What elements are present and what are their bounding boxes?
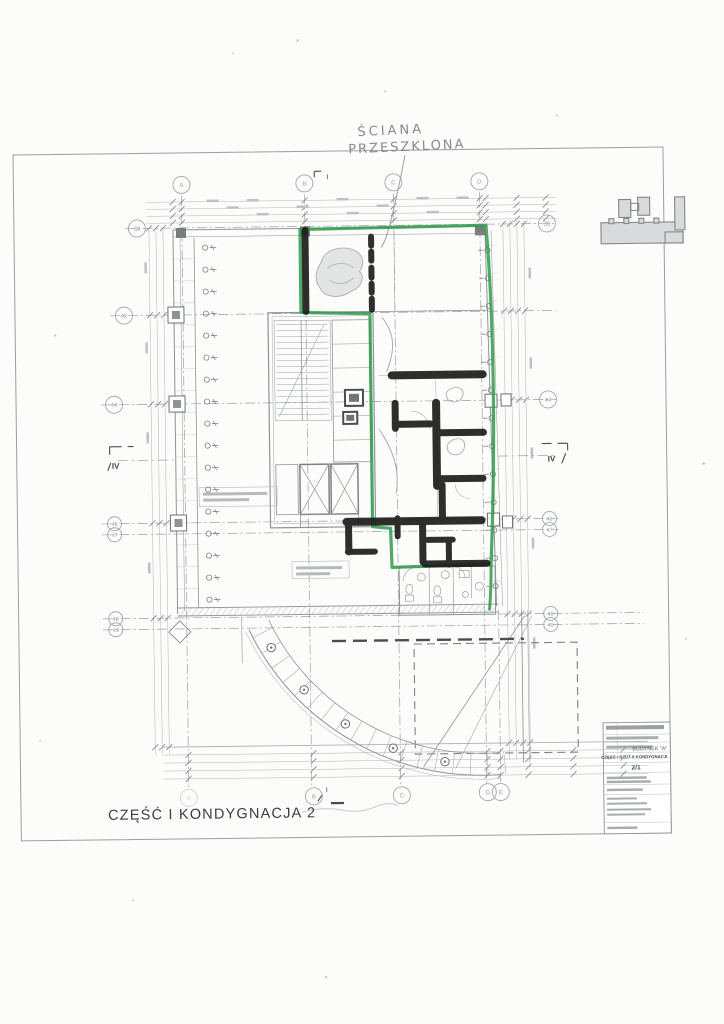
- grid-axis-line: [182, 196, 189, 788]
- dim-number-blur: [146, 432, 149, 443]
- dim-line: [163, 757, 648, 763]
- wall-hatch-line: [366, 606, 372, 614]
- handwritten-annotation-line1: ŚCIANA: [357, 121, 424, 140]
- wall-hatch-line: [390, 605, 396, 613]
- wall-hatch-line: [264, 607, 270, 615]
- dim-number-blur: [297, 205, 309, 208]
- wall-hatch-line: [258, 607, 264, 615]
- wall-hatch-line: [192, 608, 198, 616]
- wall-hatch-line: [468, 604, 474, 612]
- wall-hatch-line: [246, 607, 252, 615]
- grid-bubble-label: 42: [121, 314, 128, 320]
- stair-tread: [277, 396, 329, 397]
- wall-hatch-line: [294, 607, 300, 615]
- wall-hatch-line: [318, 606, 324, 614]
- canopy-tick: [452, 752, 455, 774]
- wall-hatch-line: [348, 606, 354, 614]
- wall-hatch-line: [306, 606, 312, 614]
- grid-bubble-label: 38: [544, 222, 551, 228]
- wall-hatch-line: [414, 605, 420, 613]
- window-symbol: [203, 245, 208, 250]
- window-symbol: [203, 289, 208, 294]
- stair-tread: [276, 342, 328, 343]
- dim-number-blur: [427, 211, 439, 214]
- wall-hatch-line: [462, 604, 468, 612]
- stair-tread: [277, 360, 329, 361]
- wall-hatch-line: [372, 606, 378, 614]
- wall-hatch-line: [450, 605, 456, 613]
- dim-line: [147, 218, 557, 223]
- wall-hatch-line: [216, 607, 222, 615]
- window-symbol: [204, 377, 209, 382]
- wall-hatch-line: [336, 606, 342, 614]
- canopy-tick: [504, 752, 506, 774]
- canopy-tick: [366, 729, 376, 749]
- wall-hatch-line: [228, 607, 234, 615]
- window-symbol: [206, 553, 211, 558]
- marker-wall-stroke: [347, 520, 482, 522]
- grid-bubble-label: C: [400, 793, 405, 799]
- wall-hatch-line: [384, 605, 390, 613]
- dim-line: [524, 221, 531, 760]
- wall-hatch-line: [402, 605, 408, 613]
- dim-number-blur: [257, 213, 269, 216]
- wall-hatch-line: [360, 606, 366, 614]
- dim-number-blur: [417, 197, 429, 200]
- wall-hatch-line: [198, 608, 204, 616]
- dim-line: [503, 221, 510, 760]
- dimension-lines: [144, 193, 649, 782]
- grid-bubble-label: 38: [134, 227, 141, 233]
- grid-bubble-label: 46: [111, 522, 117, 528]
- stair-tread: [276, 336, 328, 337]
- stair-tread: [276, 330, 328, 331]
- wall-hatch-line: [432, 605, 438, 613]
- canopy-outer-edge2: [245, 628, 502, 782]
- wall-hatch-line: [240, 607, 246, 615]
- window-symbol: [205, 421, 210, 426]
- grid-axis-line: [103, 623, 644, 630]
- canopy-tick: [470, 753, 471, 775]
- grid-bubble-label: B: [302, 182, 306, 188]
- stair-tread: [276, 354, 328, 355]
- canopy-tick: [283, 668, 300, 682]
- grid-bubble-label: A: [187, 796, 191, 802]
- grid-bubble-label: 47: [547, 528, 553, 534]
- section-marker-top: I: [326, 174, 328, 181]
- stair-tread: [277, 384, 329, 385]
- grid-axis-line: [499, 610, 501, 784]
- wall-hatch-line: [312, 606, 318, 614]
- wall-hatch-line: [252, 607, 258, 615]
- grid-axis-line: [479, 192, 486, 784]
- window-symbol: [207, 597, 212, 602]
- key-plan-icon: [601, 197, 686, 244]
- grid-bubble-label: 48: [113, 617, 119, 623]
- window-symbol: [204, 355, 209, 360]
- sheet: BUDYNEK "A" CZĘŚĆ I RZUT II KONDYGNACJI …: [12, 34, 712, 982]
- wall-hatch-line: [204, 608, 210, 616]
- grid-bubble-label: 47: [112, 533, 118, 539]
- wall-hatch-line: [282, 607, 288, 615]
- stair-tread: [277, 408, 329, 409]
- wall-hatch-line: [276, 607, 282, 615]
- canopy-tick: [253, 628, 273, 638]
- wall-hatch-line: [300, 606, 306, 614]
- stair-tread: [277, 366, 329, 367]
- window-symbol: [204, 399, 209, 404]
- wall-hatch-line: [426, 605, 432, 613]
- dim-line: [156, 228, 162, 754]
- wall-hatch-line: [378, 605, 384, 613]
- title-block: BUDYNEK "A" CZĘŚĆ I RZUT II KONDYGNACJI …: [601, 722, 671, 834]
- dim-number-blur: [247, 199, 259, 202]
- window-symbol: [205, 443, 210, 448]
- grid-bubble-label: 44: [111, 403, 118, 409]
- wall-hatch-line: [438, 605, 444, 613]
- canopy-tick: [417, 746, 423, 767]
- canopy-outer-edge: [249, 627, 502, 778]
- wall-hatch-line: [408, 605, 414, 613]
- plan-caption: CZĘŚĆ I KONDYGNACJA 2: [108, 803, 316, 824]
- canopy-tick: [351, 721, 363, 740]
- canopy-tick: [321, 703, 335, 720]
- dim-number-blur: [145, 342, 148, 353]
- scanned-floor-plan-page: BUDYNEK "A" CZĘŚĆ I RZUT II KONDYGNACJI …: [0, 0, 724, 1024]
- dim-number-blur: [532, 538, 535, 549]
- marker-wall-stroke: [436, 403, 437, 486]
- wall-hatch-line: [330, 606, 336, 614]
- window-symbol: [206, 509, 211, 514]
- section-marker-right: IV: [548, 454, 556, 463]
- window-symbol: [205, 465, 210, 470]
- grid-bubble-label: 46: [546, 517, 552, 523]
- grid-bubble-label: E: [499, 790, 503, 796]
- dim-number-blur: [207, 199, 219, 202]
- wall-hatch-line: [492, 604, 498, 612]
- grid-bubble-label: 49: [113, 628, 119, 634]
- dim-number-blur: [531, 448, 534, 459]
- pencil-sketches: ŚCIANA PRZESZKLONA: [294, 119, 474, 812]
- window-symbol: [204, 333, 209, 338]
- grid-bubble-label: 49: [548, 623, 554, 629]
- grid-bubble-label: 48: [548, 612, 554, 618]
- window-symbol: [203, 267, 208, 272]
- wall-hatch-line: [180, 608, 186, 616]
- stair-tread: [277, 414, 329, 415]
- grid-bubble-label: D: [486, 790, 491, 796]
- marker-wall-stroke: [440, 478, 483, 479]
- dim-number-blur: [528, 268, 531, 279]
- dim-line: [164, 773, 649, 779]
- curved-canopy: [245, 617, 506, 782]
- dim-line: [510, 221, 517, 760]
- title-block-subtitle: CZĘŚĆ I RZUT II KONDYGNACJI: [601, 754, 667, 760]
- dim-number-blur: [377, 204, 389, 207]
- window-symbol: [207, 575, 212, 580]
- marker-wall-stroke: [425, 563, 487, 564]
- canopy-tick: [487, 753, 488, 775]
- handwritten-annotation-line2: PRZESZKLONA: [348, 137, 466, 158]
- marker-wall-stroke: [305, 230, 306, 311]
- wall-hatch-line: [288, 607, 294, 615]
- dim-number-blur: [144, 262, 147, 273]
- wall-hatch-line: [342, 606, 348, 614]
- window-symbol: [203, 311, 208, 316]
- stair-tread: [277, 390, 329, 391]
- stair-tread: [277, 378, 329, 379]
- marker-wall-stroke: [392, 374, 483, 375]
- marker-wall-stroke: [439, 432, 483, 433]
- grid-bubble-label: D: [477, 179, 482, 185]
- wall-hatch-line: [234, 607, 240, 615]
- stair-tread: [276, 348, 328, 349]
- dim-number-blur: [347, 212, 359, 215]
- wall-hatch-line: [324, 606, 330, 614]
- dim-number-blur: [530, 358, 533, 369]
- dim-number-blur: [227, 206, 239, 209]
- section-marker-bottom: I: [326, 787, 328, 794]
- grid-bubble-label: B: [312, 795, 316, 801]
- wall-hatch-line: [444, 605, 450, 613]
- plan-drawing: BUDYNEK "A" CZĘŚĆ I RZUT II KONDYGNACJI …: [0, 0, 724, 1024]
- annotation-leader-line: [380, 155, 406, 247]
- canopy-tick: [272, 655, 290, 668]
- section-marker-left: IV: [112, 462, 120, 471]
- dim-number-blur: [457, 196, 469, 199]
- wall-hatch-line: [222, 607, 228, 615]
- wall-hatch-line: [474, 604, 480, 612]
- wall-hatch-line: [210, 608, 216, 616]
- green-outline-tail: [489, 564, 492, 609]
- wall-hatch-line: [270, 607, 276, 615]
- dim-line: [147, 204, 557, 209]
- dim-number-blur: [148, 562, 151, 573]
- dim-number-blur: [337, 198, 349, 201]
- grid-bubble-label: C: [391, 180, 396, 186]
- stair-tread: [277, 402, 329, 403]
- grid-bubble-label: 44: [545, 398, 552, 404]
- wall-hatch-line: [420, 605, 426, 613]
- canopy-tick: [307, 692, 322, 708]
- building-plan: [115, 223, 579, 773]
- stair-tread: [276, 324, 328, 325]
- grid-bubble-label: A: [179, 183, 183, 189]
- stair-tread: [277, 372, 329, 373]
- dim-line: [149, 228, 155, 754]
- pencil-cloud: [316, 248, 363, 297]
- wall-hatch-line: [456, 605, 462, 613]
- wall-hatch-line: [354, 606, 360, 614]
